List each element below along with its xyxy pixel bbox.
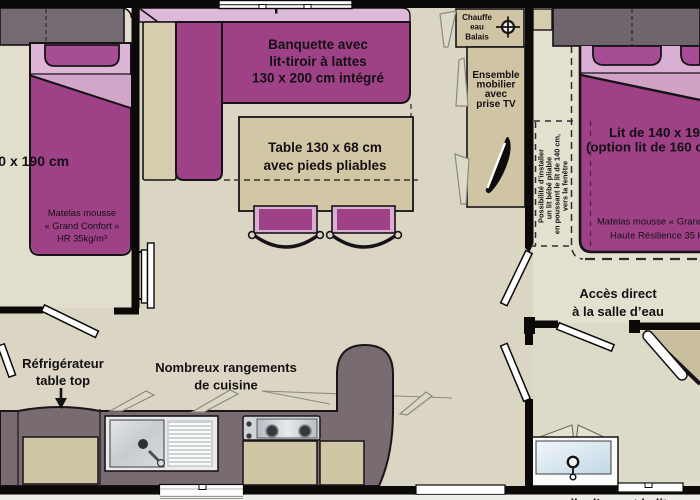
svg-text:Table 130 x 68 cm: Table 130 x 68 cm — [268, 140, 382, 155]
svg-text:Accès direct: Accès direct — [579, 286, 657, 301]
svg-text:Réfrigérateur: Réfrigérateur — [22, 356, 104, 371]
svg-text:Nombreux rangements: Nombreux rangements — [155, 360, 297, 375]
svg-text:Banquette avec: Banquette avec — [268, 37, 368, 52]
svg-text:salle d’eau et le lit: salle d’eau et le lit — [556, 496, 668, 500]
svg-text:prise TV: prise TV — [476, 99, 516, 110]
svg-text:(option lit de 160 cm): (option lit de 160 cm) — [586, 140, 700, 155]
svg-text:80 x 190 cm: 80 x 190 cm — [0, 153, 69, 169]
svg-text:Haute Résilience 35 kg/m³: Haute Résilience 35 kg/m³ — [610, 231, 700, 242]
svg-text:Balais: Balais — [465, 33, 489, 42]
svg-text:Matelas mousse: Matelas mousse — [48, 207, 116, 218]
svg-text:Chauffe: Chauffe — [462, 13, 492, 22]
svg-text:Lit de 140 x 190 cm: Lit de 140 x 190 cm — [609, 125, 700, 140]
svg-text:avec pieds pliables: avec pieds pliables — [263, 158, 386, 173]
svg-text:de cuisine: de cuisine — [194, 378, 258, 393]
svg-text:Matelas mousse « Grand Confort: Matelas mousse « Grand Confort » — [597, 217, 700, 228]
svg-text:à la salle d’eau: à la salle d’eau — [572, 304, 664, 319]
svg-text:table top: table top — [36, 373, 90, 388]
svg-text:vers la fenêtre: vers la fenêtre — [561, 161, 570, 211]
svg-text:HR 35kg/m³: HR 35kg/m³ — [57, 233, 107, 244]
svg-text:« Grand Confort »: « Grand Confort » — [44, 220, 119, 231]
svg-text:eau: eau — [470, 23, 484, 32]
svg-text:lit-tiroir à lattes: lit-tiroir à lattes — [269, 54, 367, 69]
svg-text:130 x 200 cm intégré: 130 x 200 cm intégré — [252, 71, 385, 86]
